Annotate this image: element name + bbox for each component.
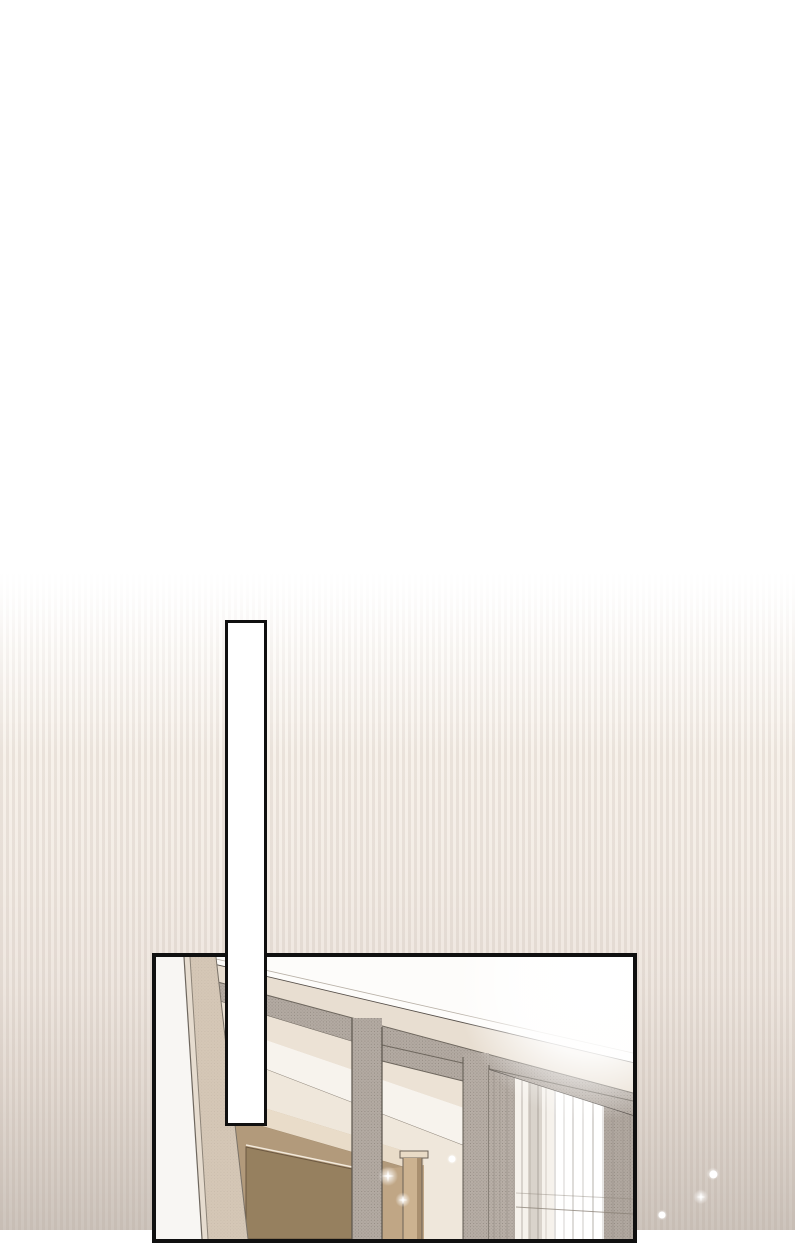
sparkle-dot-icon bbox=[706, 1167, 719, 1180]
sparkle-dot-icon bbox=[657, 1210, 668, 1221]
white-vertical-bar bbox=[225, 620, 267, 1126]
sparkle-star-icon bbox=[378, 1166, 398, 1186]
webtoon-page: { "page": { "kind": "webtoon-page-segmen… bbox=[0, 0, 795, 1230]
sparkle-star-icon bbox=[693, 1189, 708, 1204]
portal-frame-near-pillar bbox=[352, 1018, 382, 1239]
sparkle-dot-icon bbox=[447, 1154, 458, 1165]
window-light-wash bbox=[406, 957, 633, 1192]
sparkle-star-icon bbox=[395, 1192, 410, 1207]
